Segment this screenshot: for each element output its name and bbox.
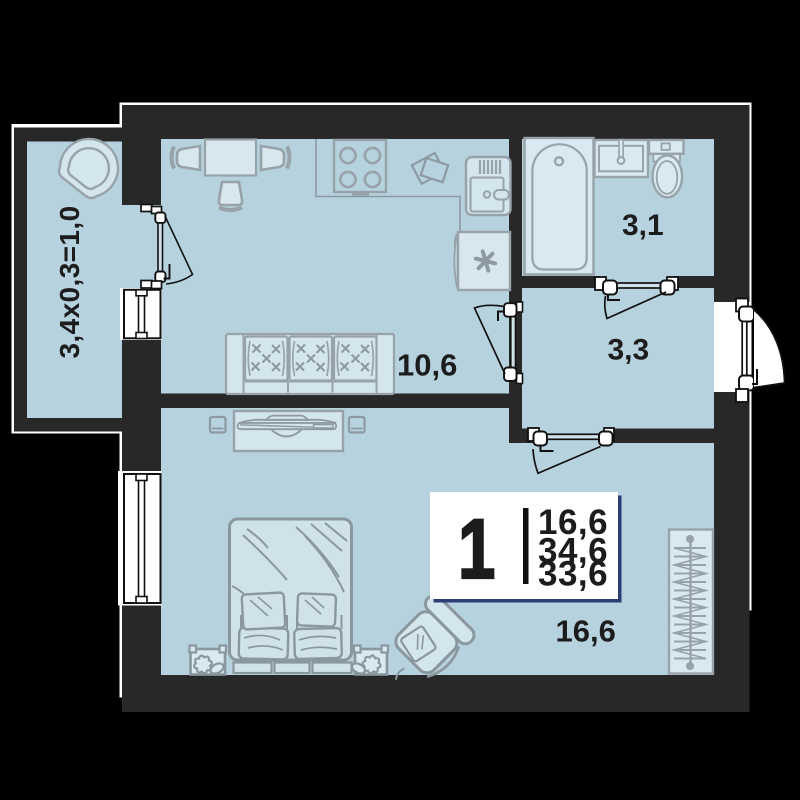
svg-text:16,6: 16,6 [556, 614, 616, 649]
svg-text:3,1: 3,1 [622, 209, 664, 242]
svg-text:10,6: 10,6 [397, 347, 457, 382]
svg-text:1: 1 [458, 503, 495, 597]
svg-text:33,6: 33,6 [538, 555, 608, 594]
svg-text:3,4x0,3=1,0: 3,4x0,3=1,0 [54, 205, 85, 358]
svg-text:3,3: 3,3 [608, 334, 650, 367]
